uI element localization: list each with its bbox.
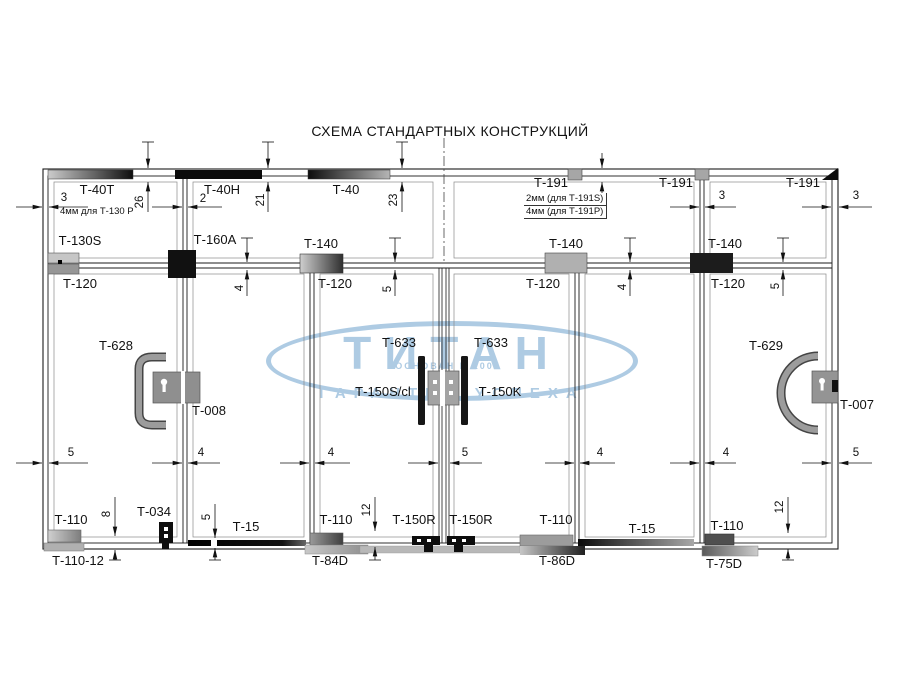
label-t191-1: Т-191 [534, 175, 568, 190]
label-t150r-2: Т-150R [449, 512, 492, 527]
label-t15-2: Т-15 [629, 521, 656, 536]
label-t629: Т-629 [749, 338, 783, 353]
dim-5-mid-3: 5 [853, 447, 859, 459]
label-t628: Т-628 [99, 338, 133, 353]
dim-4-mid-1: 4 [198, 447, 204, 459]
dim-5-mid-2: 5 [462, 447, 468, 459]
label-t191-2: Т-191 [659, 175, 693, 190]
label-t15-1: Т-15 [233, 519, 260, 534]
dim-4-mid-4: 4 [723, 447, 729, 459]
label-t110-2: Т-110 [320, 512, 353, 527]
label-t150k: Т-150K [479, 384, 522, 399]
label-t008: Т-008 [192, 403, 226, 418]
dim-5-mid-1: 5 [68, 447, 74, 459]
dim-26: 26 [134, 196, 146, 209]
note-t191s: 2мм (для Т-191S) [524, 193, 606, 206]
dim-5-transom-2: 5 [770, 283, 782, 289]
label-t140-2: Т-140 [549, 236, 583, 251]
label-t130s: Т-130S [59, 233, 102, 248]
label-t150s: Т-150S/cl [355, 384, 411, 399]
dim-5-transom-1: 5 [382, 286, 394, 292]
note-t191-box: 2мм (для Т-191S) 4мм (для Т-191P) [524, 193, 607, 219]
dim-3-left-wall: 3 [61, 192, 67, 204]
dim-4-transom-2: 4 [617, 284, 629, 290]
dim-23: 23 [388, 194, 400, 207]
label-t110-4: Т-110 [711, 518, 744, 533]
dim-12-left: 12 [361, 504, 373, 517]
label-t110-12: Т-110-12 [52, 553, 104, 568]
dim-2: 2 [200, 193, 206, 205]
note-t130p: 4мм для Т-130 Р [60, 206, 134, 217]
label-t120-3: Т-120 [526, 276, 560, 291]
label-t633-1: Т-633 [382, 335, 416, 350]
label-t633-2: Т-633 [474, 335, 508, 350]
note-t191p: 4мм (для Т-191P) [524, 206, 606, 219]
label-t86d: Т-86D [539, 553, 575, 568]
label-t191-3: Т-191 [786, 175, 820, 190]
dim-3-mullion: 3 [719, 190, 725, 202]
label-t120-1: Т-120 [63, 276, 97, 291]
label-t84d: Т-84D [312, 553, 348, 568]
dim-4-transom-1: 4 [234, 285, 246, 291]
label-t120-2: Т-120 [318, 276, 352, 291]
dim-3-right-wall: 3 [853, 190, 859, 202]
label-t110-3: Т-110 [540, 512, 573, 527]
label-t110-1: Т-110 [55, 512, 88, 527]
label-t40h: Т-40Н [204, 182, 240, 197]
label-t140-1: Т-140 [304, 236, 338, 251]
label-t160a: Т-160А [194, 232, 237, 247]
label-t120-4: Т-120 [711, 276, 745, 291]
label-t007: Т-007 [840, 397, 874, 412]
label-t40: Т-40 [333, 182, 360, 197]
dim-5-bottom: 5 [201, 514, 213, 520]
label-t140-3: Т-140 [708, 236, 742, 251]
label-t150r-1: Т-150R [392, 512, 435, 527]
label-t40t: Т-40Т [80, 182, 115, 197]
dim-12-right: 12 [774, 501, 786, 514]
label-t75d: Т-75D [706, 556, 742, 571]
drawing-canvas: ТИТАН ОСНОВАН В 2005 ГАРАНТИЯ УСПЕХА [0, 0, 900, 700]
dim-21: 21 [255, 194, 267, 207]
dim-4-mid-3: 4 [597, 447, 603, 459]
page-title: СХЕМА СТАНДАРТНЫХ КОНСТРУКЦИЙ [311, 123, 588, 139]
label-t034: Т-034 [137, 504, 171, 519]
dim-8: 8 [101, 511, 113, 517]
dim-4-mid-2: 4 [328, 447, 334, 459]
